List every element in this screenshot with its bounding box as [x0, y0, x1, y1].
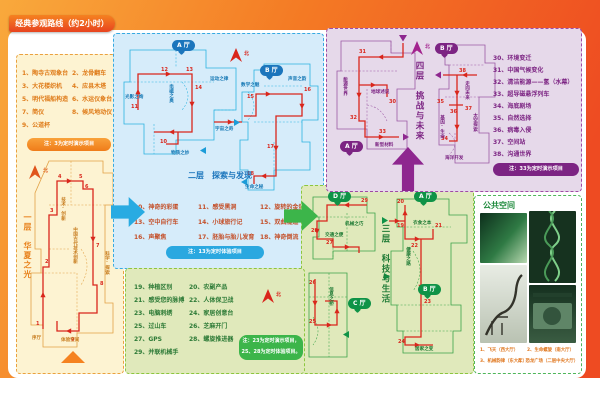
stop-number: 1 [36, 321, 40, 327]
list-item: 5、明代福船构造 [22, 93, 68, 106]
list-item: 7、简仪 [22, 106, 68, 119]
stop-number: 35 [437, 99, 444, 105]
dinosaur-icon [480, 265, 527, 343]
zone-label: 科学·探索 [105, 250, 110, 276]
stop-number: 17 [267, 144, 274, 150]
floor1-panel: 1、陶寺古观象台 3、大花楼织机 5、明代福船构造 7、简仪 9、公道杯 2、龙… [16, 54, 124, 374]
list-item: 27、GPS [134, 333, 184, 346]
list-item: 30、环境变迁 [493, 53, 573, 65]
stop-number: 12 [161, 67, 168, 73]
stop-number: 2 [45, 259, 49, 265]
zone-label: 数学之魅 [241, 81, 260, 88]
list-item: 31、中国气候变化 [493, 65, 573, 77]
zone-label: 声音之韵 [287, 75, 307, 82]
floor2-panel: 11 12 13 14 10 15 16 17 18 运动之律 光影之绚 电磁之… [113, 33, 324, 269]
list-item: 23、电脑刺绣 [134, 307, 184, 320]
stop-number: 25 [309, 319, 316, 325]
list-item: 28、螺旋推进器 [189, 333, 233, 346]
list-item: 38、沟通世界 [493, 149, 573, 161]
zone-label: 太空探索 [473, 112, 478, 133]
note-line: 注：23为定时演示项目， [239, 336, 303, 347]
relief-wall-icon [529, 285, 576, 343]
list-item: 4、应县木塔 [72, 80, 112, 93]
zone-label: 电磁之奥 [169, 83, 174, 104]
list-item: 8、候风地动仪 [72, 106, 112, 119]
list-item: 16、声聚焦 [134, 230, 178, 245]
zone-label: 生命之秘 [245, 183, 264, 190]
zone-label: 健康之路 [406, 246, 411, 267]
list-item: 33、超导磁悬浮列车 [493, 89, 573, 101]
zone-label: 居家之变 [415, 345, 434, 352]
hall-c-bubble: C 厅 [348, 298, 371, 309]
tour-route-poster: 经典参观路线（约2小时） 1、陶寺古观象台 3、大花楼织机 5、明代福船构造 7… [0, 0, 600, 400]
public-space-panel: 公共空间 1、飞天（西大厅） 2、生命螺旋（南大厅） 3、机械韵律（东大厅） 4… [474, 195, 582, 374]
stop-number: 28 [311, 228, 318, 234]
photo-flying-ceiling [480, 213, 527, 263]
list-item: 20、农副产品 [189, 281, 233, 294]
list-item: 22、人体保卫战 [189, 294, 233, 307]
entrance-triangle-icon [61, 351, 85, 363]
stop-number: 19 [397, 223, 404, 229]
photo-relief-wall [529, 285, 576, 343]
floor2-name: 二层 探索与发现 [188, 170, 252, 181]
stop-number: 6 [85, 184, 89, 190]
photo-dinosaur-skeleton [480, 265, 527, 343]
photo-caption: 1、飞天（西大厅） [480, 347, 518, 353]
route-arrow-icon [200, 147, 206, 154]
list-item: 25、过山车 [134, 320, 184, 333]
stop-number: 20 [397, 199, 404, 205]
stop-number: 29 [361, 198, 368, 204]
stop-number: 23 [424, 299, 431, 305]
route-arrow-icon [435, 72, 441, 79]
stop-number: 11 [131, 104, 138, 110]
list-item: 19、种植区别 [134, 281, 184, 294]
stop-number: 26 [309, 280, 316, 286]
stop-number: 37 [465, 106, 472, 112]
hall-a-bubble: A 厅 [172, 40, 195, 51]
floor3-map-panel: 29 28 27 机械之巧 交通之便 20 19 21 22 23 24 衣食之… [301, 185, 474, 374]
hall-b-bubble: B 厅 [418, 284, 441, 295]
route-arrow-icon [382, 217, 388, 224]
zone-label: 运动之律 [210, 75, 229, 82]
list-item: 2、龙骨翻车 [72, 67, 112, 80]
list-item: 32、清洁能源——氢（水幕） [493, 77, 573, 89]
list-item: 35、自然选择 [493, 113, 573, 125]
zone-label: 新型材料 [375, 141, 394, 148]
stop-number: 22 [411, 243, 418, 249]
list-item: 3、大花楼织机 [22, 80, 68, 93]
photo-dna-spiral [529, 211, 576, 283]
floor3-list-panel: 19、种植区别 21、感受您的脉搏 23、电脑刺绣 25、过山车 27、GPS … [125, 268, 305, 374]
note-line: 25、28为定时体验项目。 [239, 347, 303, 358]
compass-arrow-icon [411, 41, 423, 55]
page-title: 经典参观路线（约2小时） [9, 15, 115, 32]
stop-number: 8 [100, 281, 104, 287]
stop-number: 27 [326, 240, 333, 246]
stop-number: 4 [58, 174, 62, 180]
floor3-note-pill: 注：23为定时演示项目， 25、28为定时体验项目。 [239, 335, 303, 360]
zone-label: 技术·创新 [61, 196, 67, 222]
compass-north-icon: 北 [411, 41, 426, 57]
zone-label: 能源世界 [343, 76, 348, 97]
floor2-list-col2: 11、感受黑洞 14、小球旅行记 17、胚胎与胎儿发育 [198, 200, 254, 245]
hall-a-bubble: A 厅 [414, 191, 437, 202]
zone-label: 中国古代技术创新 [73, 226, 79, 265]
stop-number: 33 [379, 129, 386, 135]
list-item: 18、神奇倒流 [260, 230, 304, 245]
floor3-name-vertical: 三层 科技与生活 [379, 224, 391, 346]
route-arrow-icon [399, 35, 407, 42]
floor3-list-col2: 20、农副产品 22、人体保卫战 24、家居创意台 26、芝麻开门 28、螺旋推… [189, 281, 233, 346]
stop-number: 3 [50, 208, 54, 214]
zone-label: 地球述说 [371, 88, 390, 95]
compass-arrow-icon [230, 48, 242, 62]
stop-number: 14 [195, 85, 202, 91]
hall-b-bubble: B 厅 [260, 65, 283, 76]
floor3-list-col1: 19、种植区别 21、感受您的脉搏 23、电脑刺绣 25、过山车 27、GPS … [134, 281, 184, 359]
stop-number: 24 [398, 339, 405, 345]
stop-number: 13 [186, 67, 193, 73]
stop-number: 36 [450, 109, 457, 115]
zone-label: 机械之巧 [345, 220, 364, 227]
list-item: 9、公道杯 [22, 119, 68, 132]
route-arrow-icon [343, 331, 349, 338]
list-item: 24、家居创意台 [189, 307, 233, 320]
hall-b-bubble: B 厅 [435, 43, 458, 54]
route-arrow-icon [234, 119, 240, 126]
stop-number: 31 [359, 49, 366, 55]
list-item: 37、空间站 [493, 137, 573, 149]
list-item: 34、海底剧场 [493, 101, 573, 113]
list-item: 36、病毒入侵 [493, 125, 573, 137]
hall-d-bubble: D 厅 [328, 191, 351, 202]
stop-number: 21 [435, 223, 442, 229]
list-item: 21、感受您的脉搏 [134, 294, 184, 307]
stop-number: 38 [459, 68, 466, 74]
photo-caption: 2、生命螺旋（南大厅） [527, 347, 574, 353]
list-item: 6、水运仪象台 [72, 93, 112, 106]
zone-label: 走向未来 [465, 80, 471, 101]
list-item: 26、芝麻开门 [189, 320, 233, 333]
compass-north-icon: 北 [230, 48, 245, 64]
zone-label: 体验空间 [61, 336, 80, 343]
compass-arrow-icon [262, 289, 274, 303]
floor2-note-pill: 注：13为定时体验项目 [166, 246, 264, 259]
list-item: 29、并联机械手 [134, 346, 184, 359]
list-item: 1、陶寺古观象台 [22, 67, 68, 80]
hall-a-bubble: A 厅 [340, 141, 363, 152]
dna-spiral-icon [529, 211, 576, 283]
photo-caption: 4、恐龙广场（二层中央大厅） [518, 358, 578, 364]
stop-number: 10 [160, 139, 167, 145]
stop-number: 5 [79, 174, 83, 180]
compass-north-icon: 北 [262, 289, 277, 305]
zone-label: 序厅 [32, 334, 42, 341]
floor4-panel: 31 30 32 33 能源世界 地球述说 新型材料 38 35 36 37 3… [326, 28, 582, 192]
floor2-list-col1: 10、神奇的彩蛋 13、空中自行车 16、声聚焦 [134, 200, 178, 245]
list-item: 17、胚胎与胎儿发育 [198, 230, 254, 245]
zone-label: 交通之便 [325, 231, 344, 238]
zone-label: 光影之绚 [124, 93, 144, 100]
zone-label: 宇宙之奇 [215, 125, 234, 132]
floor4-note-pill: 注：33为定时演示项目 [493, 163, 579, 176]
zone-label: 物质之妙 [171, 149, 190, 156]
stop-number: 7 [96, 243, 100, 249]
list-item: 13、空中自行车 [134, 215, 178, 230]
floor1-note-pill: 注：3为定时演示项目 [27, 138, 111, 151]
stop-number: 16 [304, 87, 311, 93]
stop-number: 32 [350, 115, 357, 121]
floor1-exhibit-list-col2: 2、龙骨翻车 4、应县木塔 6、水运仪象台 8、候风地动仪 [72, 67, 112, 119]
zone-label: 衣食之本 [413, 219, 432, 226]
route-arrow-icon [403, 134, 409, 141]
stop-number: 30 [389, 99, 396, 105]
list-item: 14、小球旅行记 [198, 215, 254, 230]
stop-number: 15 [247, 94, 254, 100]
floor4-list: 30、环境变迁 31、中国气候变化 32、清洁能源——氢（水幕） 33、超导磁悬… [493, 53, 573, 161]
public-space-title: 公共空间 [483, 200, 515, 211]
list-item: 11、感受黑洞 [198, 200, 254, 215]
floor1-exhibit-list-col1: 1、陶寺古观象台 3、大花楼织机 5、明代福船构造 7、简仪 9、公道杯 [22, 67, 68, 132]
zone-label: 海洋开发 [445, 154, 464, 161]
floor1-map: 1 2 3 4 5 6 7 8 9 技术·创新 中国古代技术创新 科学·探索 序… [19, 155, 121, 371]
zone-label: 信息之桥 [329, 286, 334, 307]
